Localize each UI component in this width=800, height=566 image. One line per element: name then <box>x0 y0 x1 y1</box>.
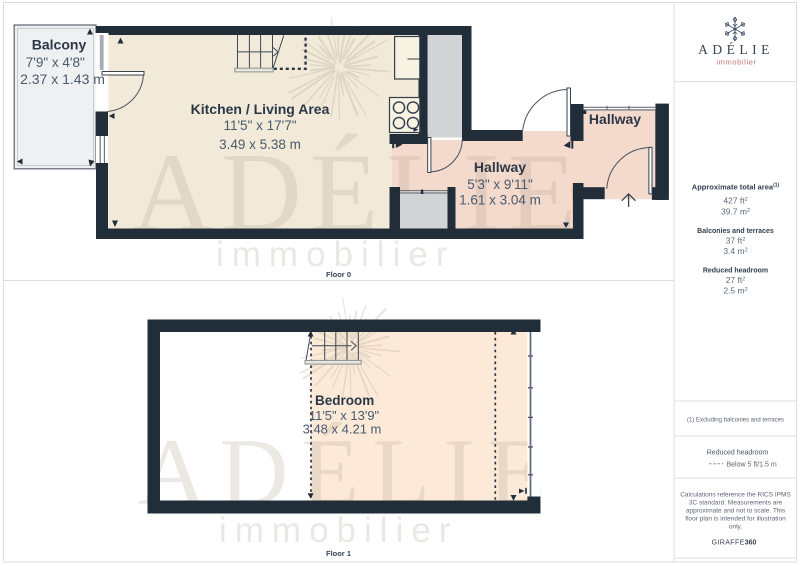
svg-text:(1) Excluding balconies and te: (1) Excluding balconies and terraces <box>687 418 784 424</box>
svg-text:GIRAFFE360: GIRAFFE360 <box>712 540 757 547</box>
svg-text:immobilier: immobilier <box>216 235 455 274</box>
svg-text:immobilier: immobilier <box>716 58 756 67</box>
svg-text:immobilier: immobilier <box>219 511 458 550</box>
svg-text:Reduced headroom: Reduced headroom <box>707 450 769 457</box>
svg-text:1.61 x 3.04 m: 1.61 x 3.04 m <box>459 193 541 208</box>
svg-text:Reduced headroom: Reduced headroom <box>703 268 768 275</box>
svg-text:3.48 x 4.21 m: 3.48 x 4.21 m <box>303 422 382 437</box>
svg-text:11'5" x 17'7": 11'5" x 17'7" <box>223 118 296 133</box>
svg-text:3.4 m2: 3.4 m2 <box>723 246 747 256</box>
svg-text:Approximate total area(1): Approximate total area(1) <box>692 183 780 192</box>
svg-text:approximate and not to scale.: approximate and not to scale. This <box>686 508 786 515</box>
svg-text:Calculations reference the RIC: Calculations reference the RICS IPMS <box>680 492 791 499</box>
svg-text:3C standard. Measurements are: 3C standard. Measurements are <box>689 500 783 507</box>
svg-text:2.37 x 1.43 m: 2.37 x 1.43 m <box>20 71 105 87</box>
svg-text:Balcony: Balcony <box>32 37 87 53</box>
svg-text:Floor 0: Floor 0 <box>326 270 351 279</box>
svg-text:Hallway: Hallway <box>474 159 526 175</box>
svg-text:Bedroom: Bedroom <box>315 393 374 408</box>
svg-text:Below 5 ft/1.5 m: Below 5 ft/1.5 m <box>727 462 777 469</box>
svg-text:427 ft2: 427 ft2 <box>723 196 747 206</box>
svg-text:39.7 m2: 39.7 m2 <box>721 207 750 217</box>
svg-text:3.49 x 5.38 m: 3.49 x 5.38 m <box>219 137 301 152</box>
svg-text:Balconies and terraces: Balconies and terraces <box>697 228 774 235</box>
svg-text:7'9" x 4'8": 7'9" x 4'8" <box>26 55 85 70</box>
svg-text:only.: only. <box>729 524 742 531</box>
svg-text:Hallway: Hallway <box>589 111 641 127</box>
svg-text:5'3" x 9'11": 5'3" x 9'11" <box>467 177 533 192</box>
svg-text:floor plan is intended for ill: floor plan is intended for illustration <box>685 516 786 523</box>
svg-text:Kitchen / Living Area: Kitchen / Living Area <box>191 101 330 117</box>
svg-text:2.5 m2: 2.5 m2 <box>723 286 747 296</box>
svg-text:Floor 1: Floor 1 <box>326 549 351 558</box>
svg-text:ADÉLIE: ADÉLIE <box>698 42 774 57</box>
